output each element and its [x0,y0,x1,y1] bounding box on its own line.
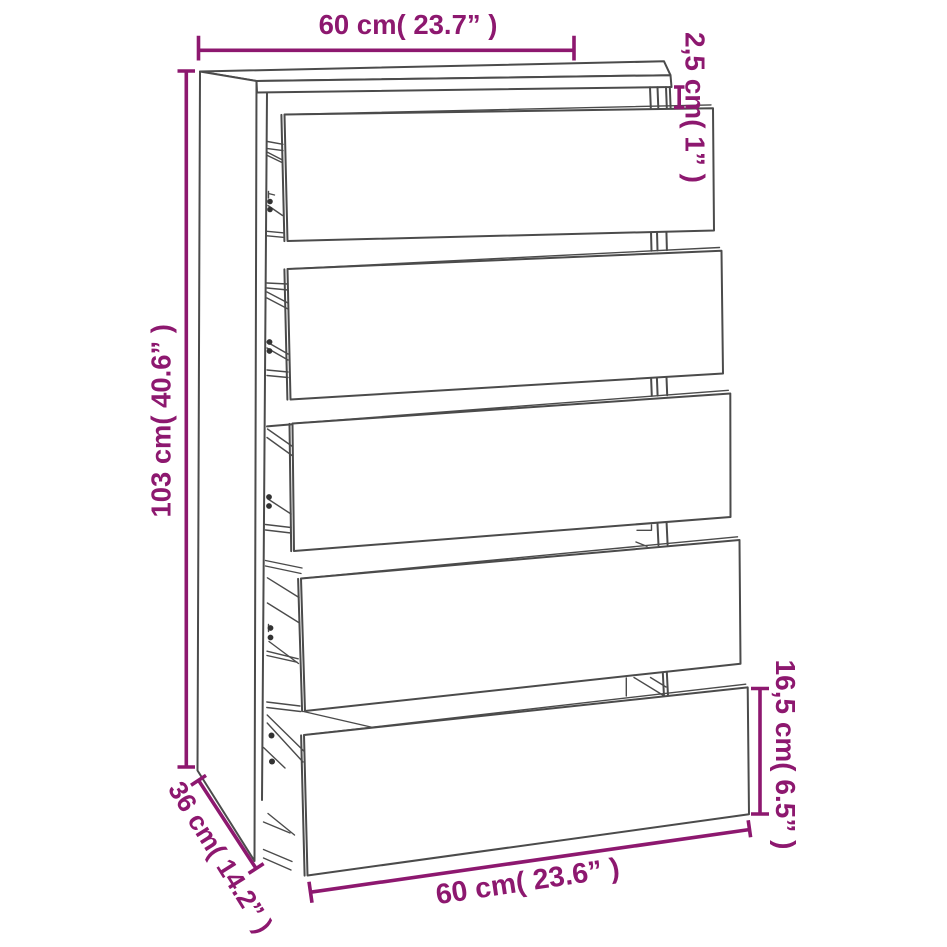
svg-text:16,5 cm( 6.5” ): 16,5 cm( 6.5” ) [770,660,801,850]
svg-text:60 cm( 23.7” ): 60 cm( 23.7” ) [319,9,498,40]
svg-text:103 cm( 40.6” ): 103 cm( 40.6” ) [146,324,177,517]
svg-text:2,5 cm( 1” ): 2,5 cm( 1” ) [680,32,711,183]
